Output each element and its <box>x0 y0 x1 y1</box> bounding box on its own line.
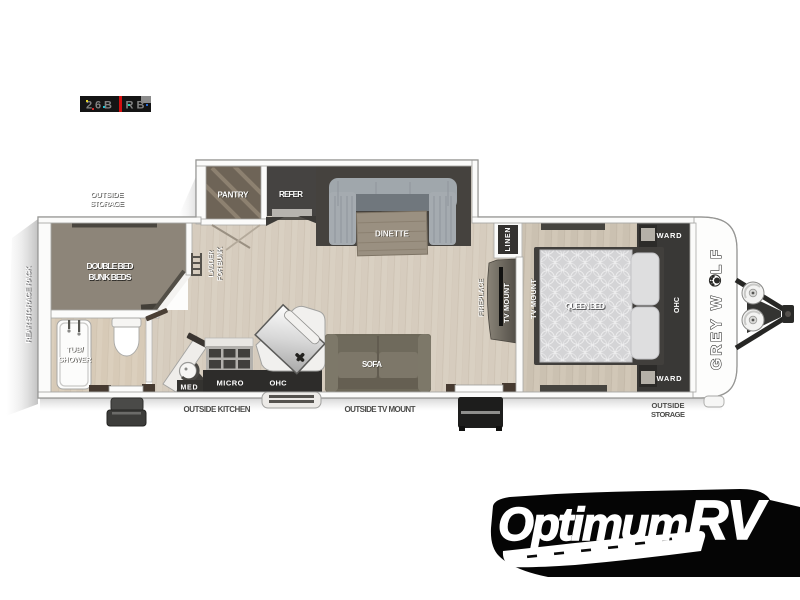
svg-text:BUNK BEDS: BUNK BEDS <box>89 272 132 282</box>
svg-text:OUTSIDE: OUTSIDE <box>91 190 124 199</box>
svg-text:Optimum: Optimum <box>498 498 688 550</box>
svg-text:PANTRY: PANTRY <box>218 191 250 200</box>
svg-text:OUTSIDE KITCHEN: OUTSIDE KITCHEN <box>184 405 251 414</box>
svg-text:RV: RV <box>688 488 769 551</box>
svg-text:SOFA: SOFA <box>362 360 382 369</box>
svg-text:TV MOUNT: TV MOUNT <box>502 283 511 323</box>
svg-text:STORAGE: STORAGE <box>90 199 124 208</box>
svg-text:OUTSIDE TV MOUNT: OUTSIDE TV MOUNT <box>345 405 416 414</box>
svg-text:SHOWER: SHOWER <box>59 355 93 364</box>
svg-text:LADDER: LADDER <box>209 251 216 278</box>
svg-text:GREY W: GREY W <box>708 294 725 370</box>
svg-text:STORAGE: STORAGE <box>651 410 685 419</box>
svg-text:OHC: OHC <box>674 297 681 313</box>
svg-text:26B: 26B <box>86 100 112 112</box>
svg-text:TV MOUNT: TV MOUNT <box>529 279 538 319</box>
svg-text:QUEEN BED: QUEEN BED <box>565 301 605 311</box>
svg-text:FIREPLACE: FIREPLACE <box>479 279 486 317</box>
svg-text:TUB/: TUB/ <box>67 345 85 354</box>
svg-text:REAR STORAGE RACK: REAR STORAGE RACK <box>24 266 33 344</box>
svg-text:WARD: WARD <box>657 231 683 240</box>
svg-text:LINEN: LINEN <box>505 228 512 252</box>
svg-text:FOR BUNK: FOR BUNK <box>217 247 224 281</box>
svg-text:OUTSIDE: OUTSIDE <box>652 401 685 410</box>
svg-text:MICRO: MICRO <box>217 379 244 388</box>
svg-text:DINETTE: DINETTE <box>375 230 410 239</box>
svg-text:REFER: REFER <box>279 190 303 199</box>
svg-text:DOUBLE BED: DOUBLE BED <box>87 261 134 271</box>
svg-text:MED: MED <box>181 385 198 392</box>
svg-text:WARD: WARD <box>657 374 683 383</box>
svg-text:OHC: OHC <box>270 379 288 388</box>
